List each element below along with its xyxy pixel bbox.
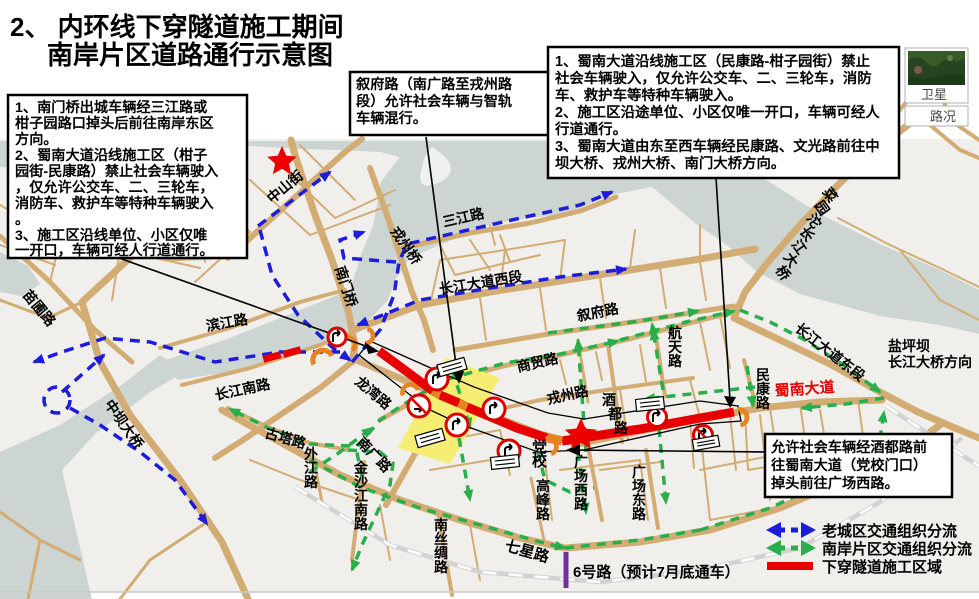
svg-text:广场西路: 广场西路 bbox=[574, 454, 589, 512]
svg-text:党校: 党校 bbox=[532, 438, 548, 470]
svg-text:消防车、救护车等特种车辆驶入: 消防车、救护车等特种车辆驶入 bbox=[15, 195, 214, 212]
svg-text:盐坪坝: 盐坪坝 bbox=[888, 338, 930, 354]
svg-text:南岸片区道路通行示意图: 南岸片区道路通行示意图 bbox=[47, 40, 333, 70]
svg-text:坝大桥、戎州大桥、南门大桥方向。: 坝大桥、戎州大桥、南门大桥方向。 bbox=[555, 154, 785, 172]
svg-text:航天路: 航天路 bbox=[668, 325, 683, 369]
svg-text:方向。: 方向。 bbox=[15, 131, 58, 148]
svg-text:往蜀南大道（党校门口）: 往蜀南大道（党校门口） bbox=[771, 457, 927, 474]
svg-text:一开口，车辆可经人行道通行。: 一开口，车辆可经人行道通行。 bbox=[15, 242, 214, 259]
svg-text:路况: 路况 bbox=[930, 109, 956, 124]
svg-text:园街-民康路）禁止社会车辆驶入: 园街-民康路）禁止社会车辆驶入 bbox=[15, 163, 219, 180]
svg-text:长江大桥方向: 长江大桥方向 bbox=[888, 354, 972, 370]
svg-text:广场东路: 广场东路 bbox=[632, 464, 647, 522]
svg-text:社会车辆驶入，仅允许公交车、二、三轮车，消防: 社会车辆驶入，仅允许公交车、二、三轮车，消防 bbox=[554, 69, 872, 87]
svg-text:卫星: 卫星 bbox=[921, 87, 947, 102]
svg-text:2、施工区沿途单位、小区仅唯一开口，车辆可经人: 2、施工区沿途单位、小区仅唯一开口，车辆可经人 bbox=[555, 103, 880, 121]
svg-text:1、南门桥出城车辆经三江路或: 1、南门桥出城车辆经三江路或 bbox=[15, 99, 207, 116]
svg-text:2、蜀南大道沿线施工区（柑子: 2、蜀南大道沿线施工区（柑子 bbox=[15, 147, 207, 164]
svg-text:民康路: 民康路 bbox=[756, 367, 771, 411]
svg-text:6号路（预计7月底通车）: 6号路（预计7月底通车） bbox=[573, 563, 740, 581]
svg-text:。: 。 bbox=[15, 212, 29, 228]
svg-text:1、蜀南大道沿线施工区（民康路-柑子园街）禁止: 1、蜀南大道沿线施工区（民康路-柑子园街）禁止 bbox=[555, 52, 870, 70]
svg-text:3、蜀南大道由东至西车辆经民康路、文光路前往中: 3、蜀南大道由东至西车辆经民康路、文光路前往中 bbox=[555, 137, 880, 155]
svg-text:段）允许社会车辆与智轨: 段）允许社会车辆与智轨 bbox=[356, 93, 512, 110]
svg-text:金沙江南路: 金沙江南路 bbox=[353, 460, 369, 532]
svg-text:，仅允许公交车、二、三轮车，: ，仅允许公交车、二、三轮车， bbox=[15, 179, 214, 196]
svg-text:柑子园路口掉头后前往南岸东区: 柑子园路口掉头后前往南岸东区 bbox=[15, 115, 214, 132]
svg-text:车辆混行。: 车辆混行。 bbox=[356, 110, 427, 127]
svg-text:行道通行。: 行道通行。 bbox=[554, 120, 627, 138]
svg-text:南丝绸路: 南丝绸路 bbox=[434, 517, 449, 575]
svg-text:车、救护车等特种车辆驶入。: 车、救护车等特种车辆驶入。 bbox=[555, 86, 742, 104]
svg-text:老城区交通组织分流: 老城区交通组织分流 bbox=[821, 522, 957, 540]
svg-text:外江路: 外江路 bbox=[304, 446, 319, 490]
svg-text:掉头前往广场西路。: 掉头前往广场西路。 bbox=[771, 475, 899, 492]
svg-text:2、 内环线下穿隧道施工期间: 2、 内环线下穿隧道施工期间 bbox=[10, 12, 344, 42]
svg-text:3、施工区沿线单位、小区仅唯: 3、施工区沿线单位、小区仅唯 bbox=[15, 227, 207, 244]
svg-text:叙府路（南广路至戎州路: 叙府路（南广路至戎州路 bbox=[356, 76, 513, 93]
svg-text:下穿隧道施工区域: 下穿隧道施工区域 bbox=[822, 558, 942, 576]
svg-text:南岸片区交通组织分流: 南岸片区交通组织分流 bbox=[822, 540, 972, 558]
svg-text:高峰路: 高峰路 bbox=[536, 478, 551, 522]
svg-text:允许社会车辆经酒都路前: 允许社会车辆经酒都路前 bbox=[770, 439, 927, 456]
